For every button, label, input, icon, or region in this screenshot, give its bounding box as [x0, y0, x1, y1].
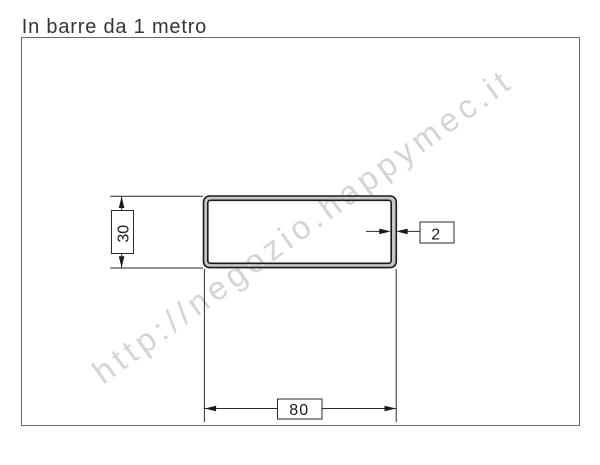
svg-text:80: 80: [289, 402, 309, 419]
svg-text:2: 2: [431, 226, 440, 243]
svg-text:In barre da 1 metro: In barre da 1 metro: [22, 16, 207, 38]
svg-text:30: 30: [116, 225, 133, 243]
